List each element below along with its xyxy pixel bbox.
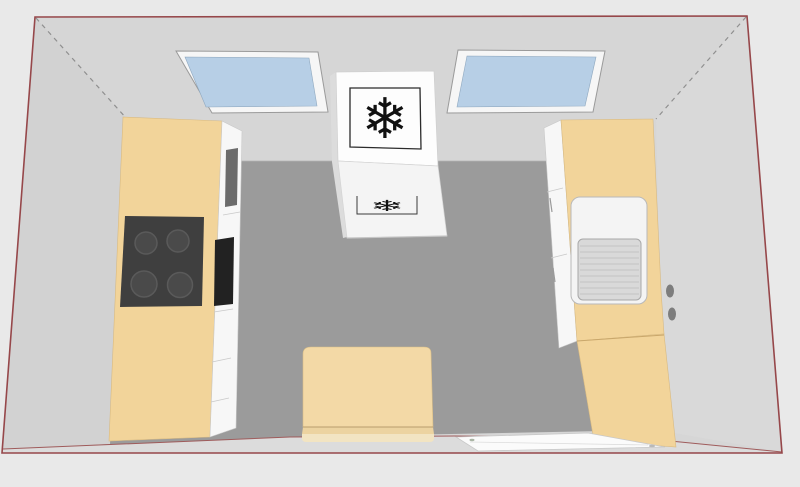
table-edge — [302, 427, 434, 434]
socket — [666, 285, 674, 298]
right-counter-base — [577, 334, 676, 447]
socket — [668, 308, 676, 321]
window-glass — [457, 56, 596, 107]
kitchen-3d-viewport[interactable]: ❄ ❄ — [0, 0, 800, 487]
burner — [168, 273, 193, 298]
burner — [135, 232, 157, 254]
table-apron — [302, 434, 434, 442]
dining-table[interactable] — [302, 347, 434, 442]
snowflake-icon: ❄ — [362, 87, 409, 152]
window-glass — [185, 57, 317, 107]
work-table-detail — [649, 445, 655, 447]
kitchen-scene-canvas[interactable]: ❄ ❄ — [0, 0, 800, 487]
cabinet-glass-slot — [225, 148, 238, 207]
oven-door[interactable] — [214, 237, 234, 306]
work-table-detail — [470, 439, 475, 441]
burner — [167, 230, 189, 252]
freezer-cabinet[interactable]: ❄ ❄ — [330, 71, 447, 238]
sink[interactable] — [571, 197, 647, 304]
snowflake-icon-front: ❄ — [370, 197, 404, 215]
left-counter[interactable] — [109, 117, 242, 441]
skylight-window-right[interactable] — [447, 50, 605, 113]
burner — [131, 271, 157, 297]
cooktop-surface — [120, 216, 204, 307]
table-top — [303, 347, 433, 427]
cooktop[interactable] — [120, 216, 204, 307]
svg-text:❄: ❄ — [370, 197, 404, 215]
